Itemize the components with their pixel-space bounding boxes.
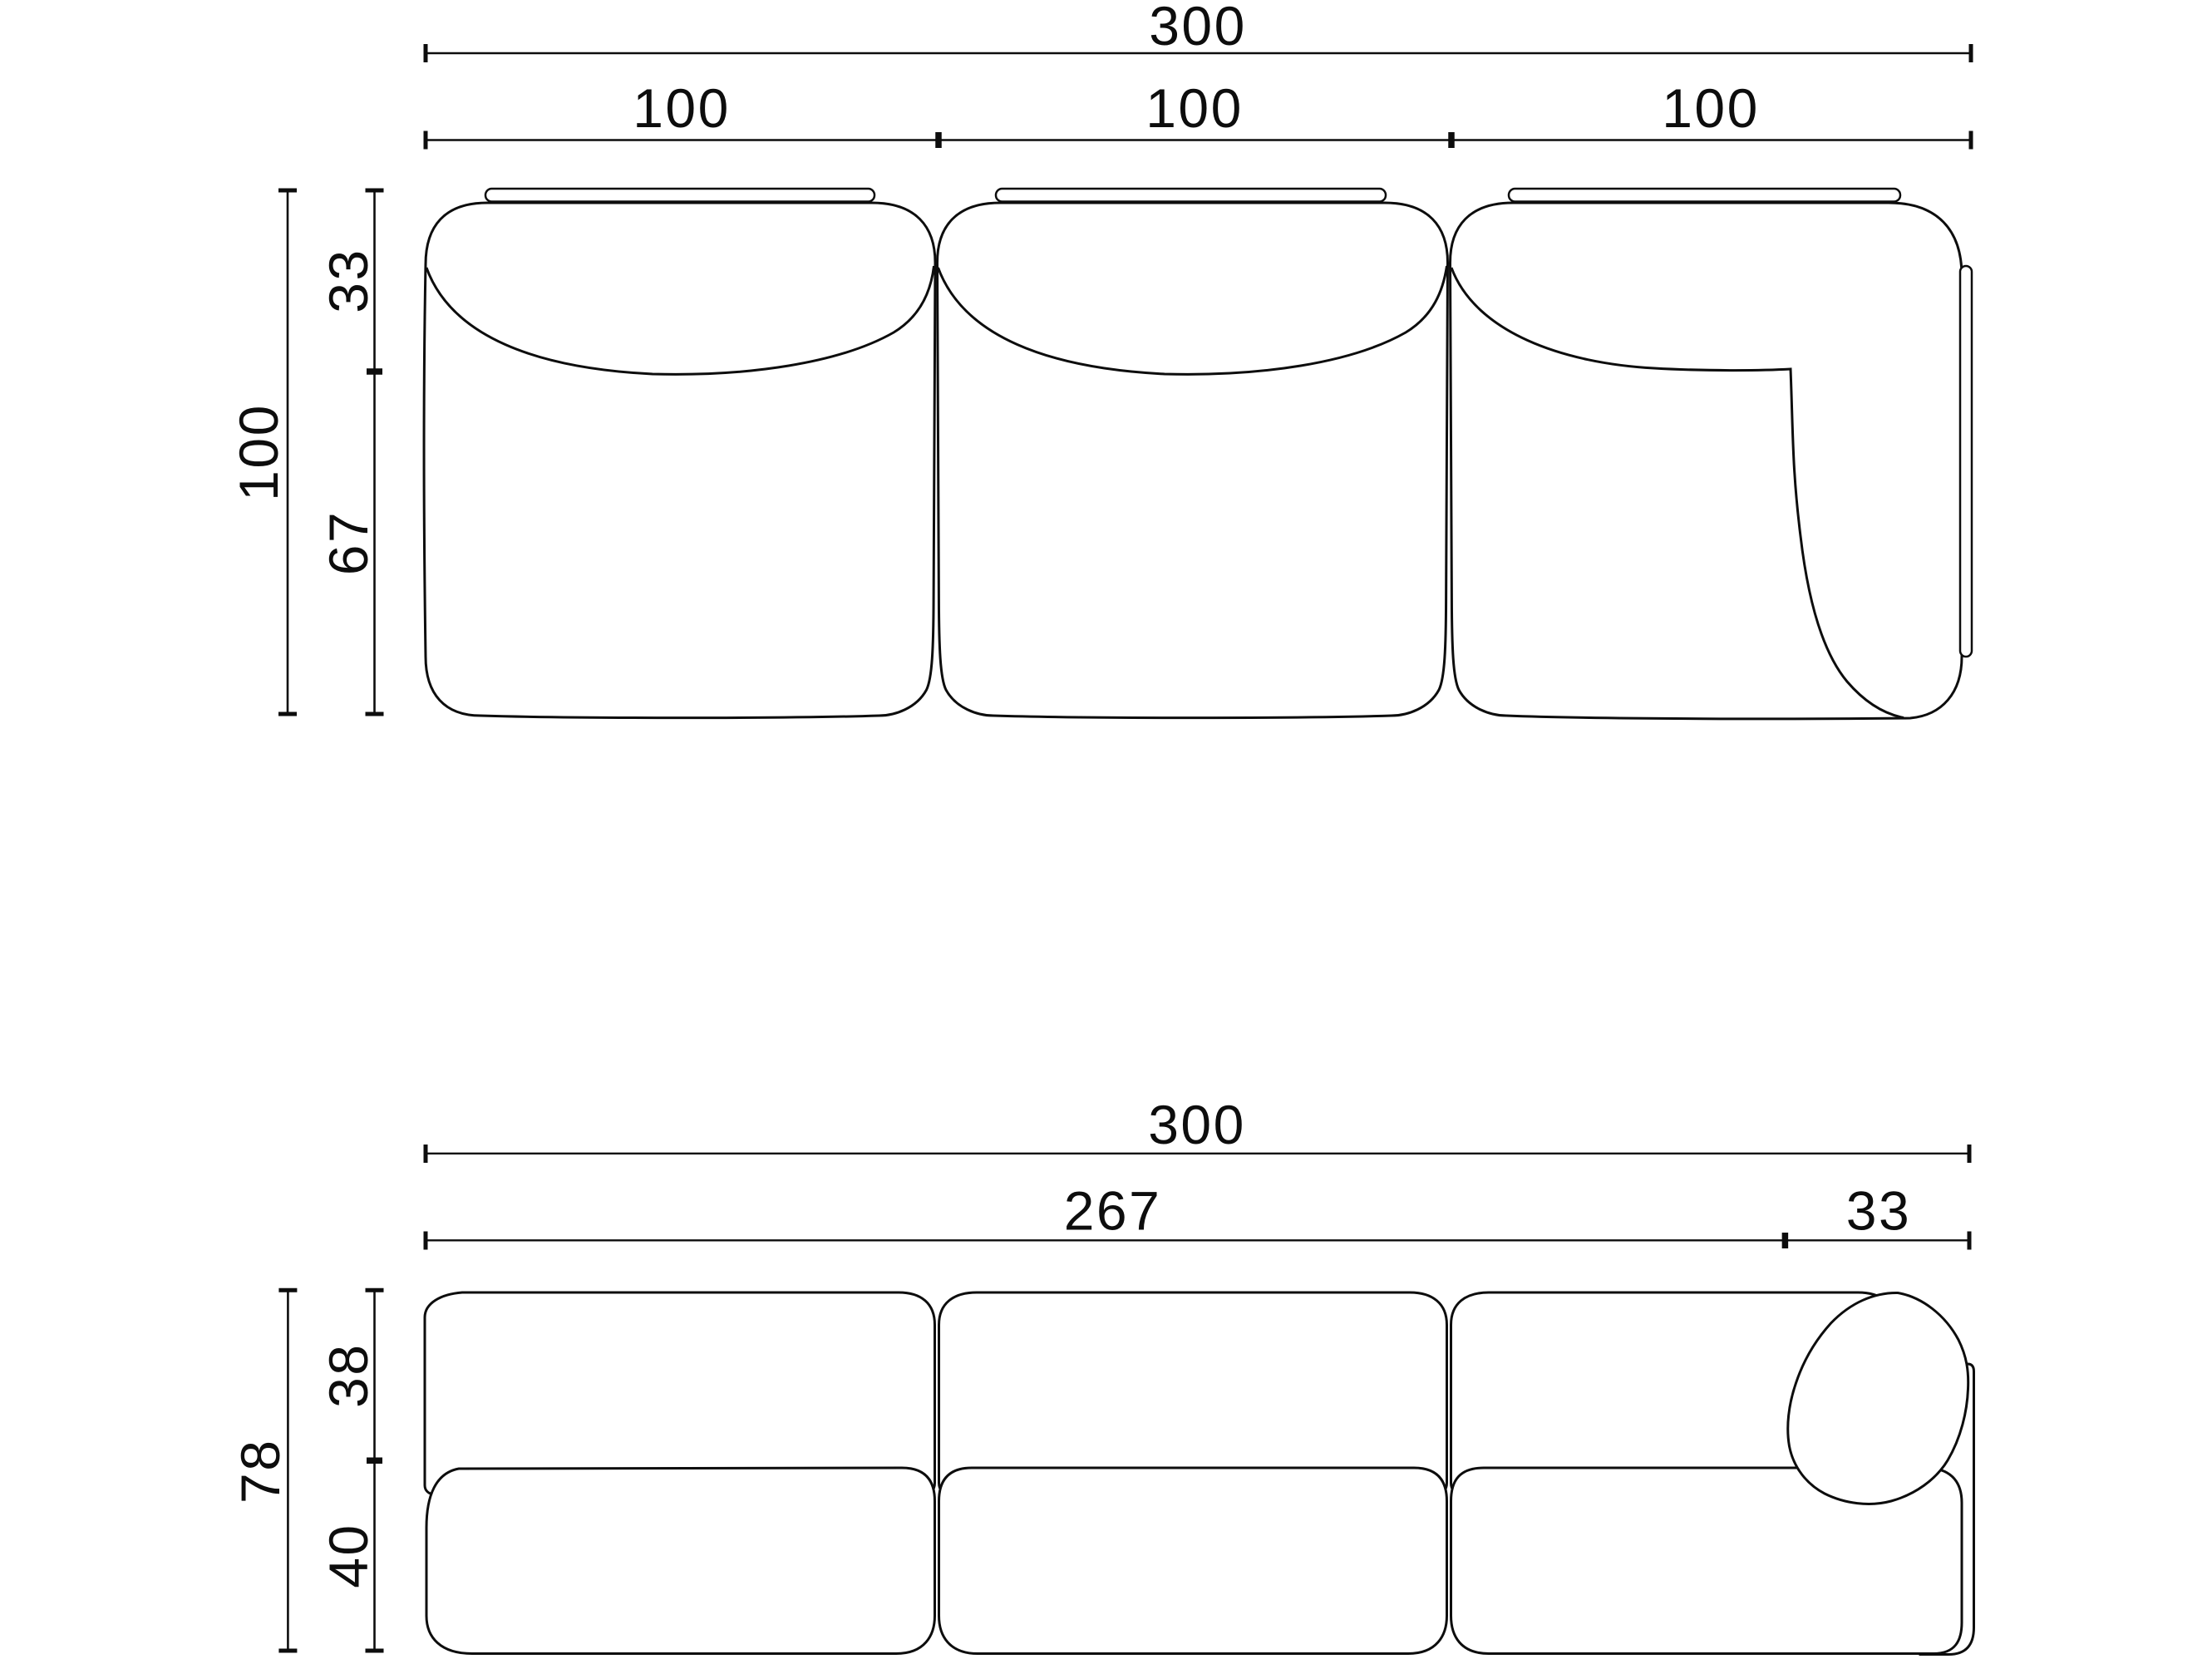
svg-text:38: 38 [318,1342,379,1407]
svg-text:78: 78 [229,1439,291,1504]
svg-text:33: 33 [318,248,379,313]
svg-text:300: 300 [1148,1094,1246,1155]
svg-text:40: 40 [318,1523,379,1588]
svg-text:100: 100 [1662,77,1760,139]
svg-text:267: 267 [1064,1180,1162,1242]
svg-text:67: 67 [318,510,379,575]
svg-text:100: 100 [1145,77,1244,139]
svg-text:300: 300 [1149,0,1247,57]
svg-text:33: 33 [1846,1180,1911,1242]
svg-text:100: 100 [633,77,731,139]
svg-text:100: 100 [228,403,289,501]
